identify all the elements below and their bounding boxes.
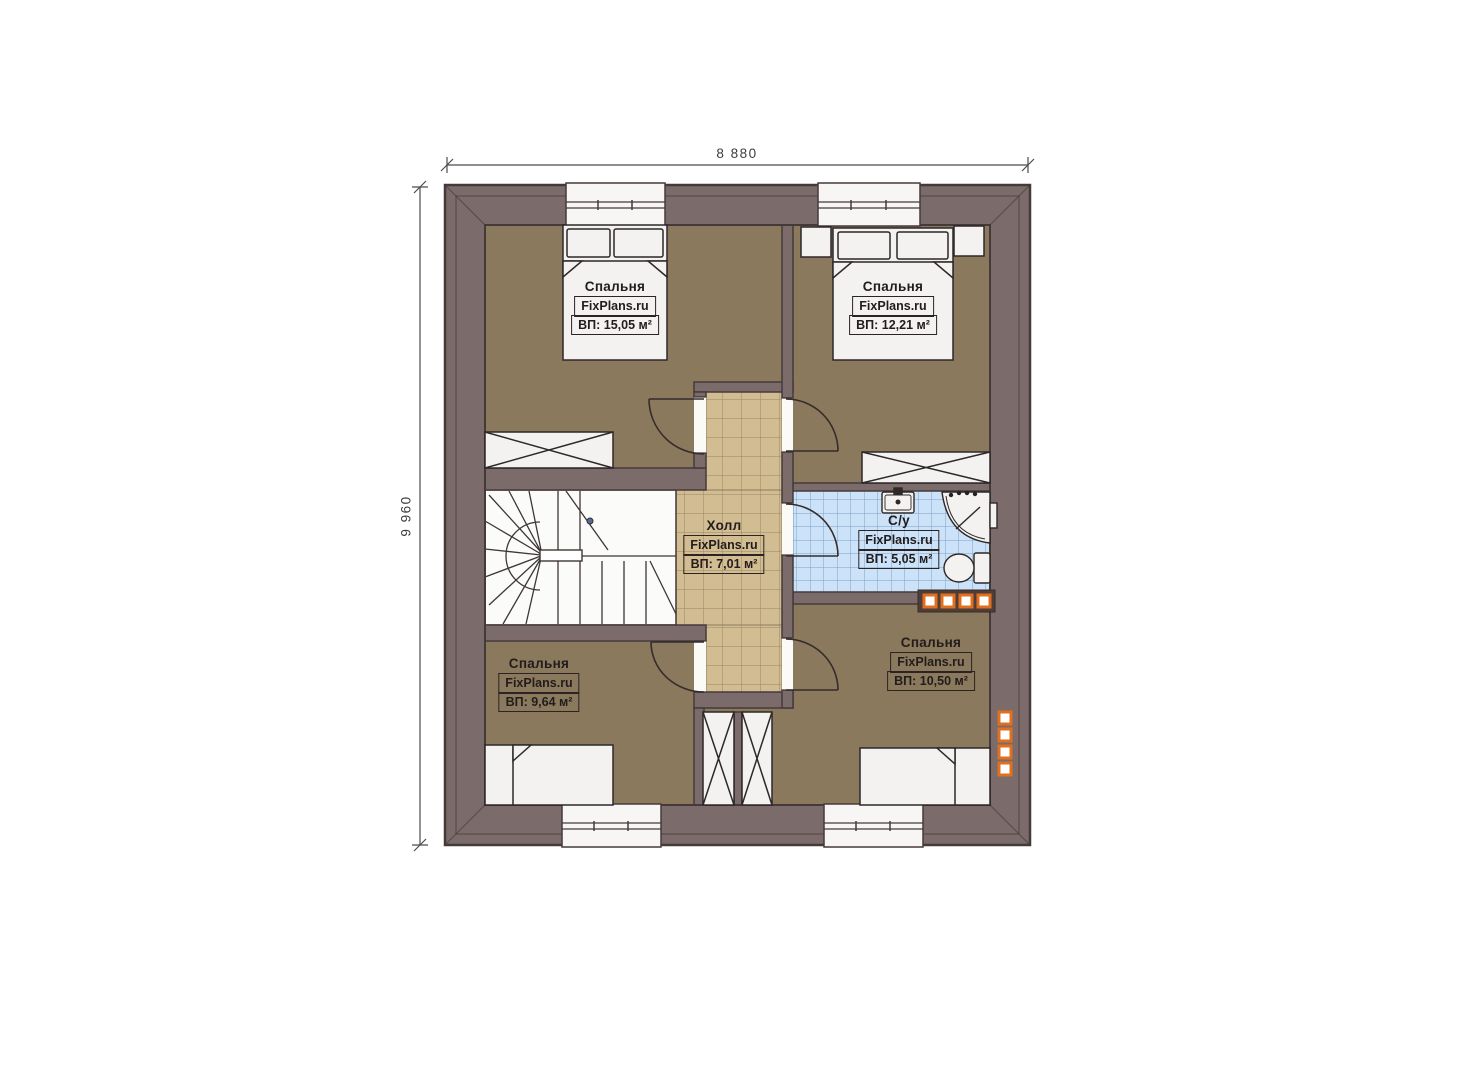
room-area: ВП: 7,01 м² [684,554,765,575]
window-bottom-right [824,804,923,847]
toilet [944,553,990,583]
floor-plan-page: 8 880 9 960 Спальня FixPlans.ru ВП: 15,0… [0,0,1473,1080]
dimension-height-label: 9 960 [399,495,414,536]
room-area: ВП: 5,05 м² [859,549,940,570]
staircase [485,490,676,625]
room-area: ВП: 10,50 м² [887,671,975,692]
room-brand-watermark: FixPlans.ru [890,652,971,673]
wall-hall-top [694,382,793,392]
wall-hall-bottom [694,692,793,708]
room-label-bedroom-top-right: Спальня FixPlans.ru ВП: 12,21 м² [849,279,937,335]
wall-stairs-top [485,468,706,490]
wardrobe-top-right [862,452,990,483]
wardrobe-closet-left [703,712,734,805]
room-brand-watermark: FixPlans.ru [574,296,655,317]
shower-handle [990,503,997,528]
room-brand-watermark: FixPlans.ru [852,296,933,317]
room-area: ВП: 9,64 м² [499,692,580,713]
window-bottom-left [562,804,661,847]
room-name: Холл [706,518,741,533]
room-label-bedroom-bottom-right: Спальня FixPlans.ru ВП: 10,50 м² [887,635,975,691]
wardrobe-top-left [485,432,613,468]
room-brand-watermark: FixPlans.ru [683,535,764,556]
room-name: Спальня [863,279,923,294]
bedside-table [801,227,831,257]
wall-hall-right-2 [782,555,793,638]
sink [882,488,914,513]
single-bed-bottom-right [860,748,990,805]
room-name: Спальня [901,635,961,650]
dimension-width-label: 8 880 [716,146,757,161]
wall-hall-left-1 [694,392,706,397]
wall-hall-left-2 [694,453,706,468]
room-label-bedroom-top-left: Спальня FixPlans.ru ВП: 15,05 м² [571,279,659,335]
single-bed-bottom-left [485,745,613,805]
wall-bathroom-top [793,483,990,491]
wall-between-top-bedrooms [782,225,793,398]
radiator-bathroom [918,590,995,612]
room-name: Спальня [585,279,645,294]
wardrobe-closet-right [742,712,772,805]
room-name: Спальня [509,656,569,671]
wall-closet-divider [734,712,742,805]
hall-floor-lower [706,625,782,692]
window-top-left [566,183,665,226]
window-top-right [818,183,920,226]
room-label-bathroom: С/у FixPlans.ru ВП: 5,05 м² [858,513,939,569]
hall-floor-upper [706,392,782,490]
dimension-line-height [412,181,428,851]
bedside-table [954,226,984,256]
wall-stairs-bottom [485,625,706,641]
room-area: ВП: 12,21 м² [849,315,937,336]
wall-hall-right-1 [782,452,793,503]
room-label-bedroom-bottom-left: Спальня FixPlans.ru ВП: 9,64 м² [498,656,579,712]
room-brand-watermark: FixPlans.ru [498,673,579,694]
room-name: С/у [888,513,910,528]
room-brand-watermark: FixPlans.ru [858,530,939,551]
room-label-hall: Холл FixPlans.ru ВП: 7,01 м² [683,518,764,574]
wall-hall-right-3 [782,690,793,708]
room-area: ВП: 15,05 м² [571,315,659,336]
